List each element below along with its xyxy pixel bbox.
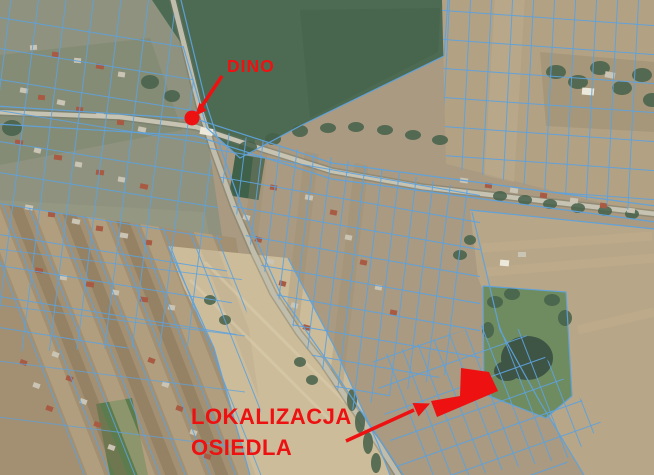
estate-label-line1: LOKALIZACJA [191,404,352,429]
satellite-map-viewport: DINO LOKALIZACJA OSIEDLA [0,0,654,475]
estate-label-line2: OSIEDLA [191,435,292,460]
dino-label-text: DINO [227,56,275,76]
satellite-map: DINO LOKALIZACJA OSIEDLA [0,0,654,475]
dino-location-dot [185,111,200,126]
